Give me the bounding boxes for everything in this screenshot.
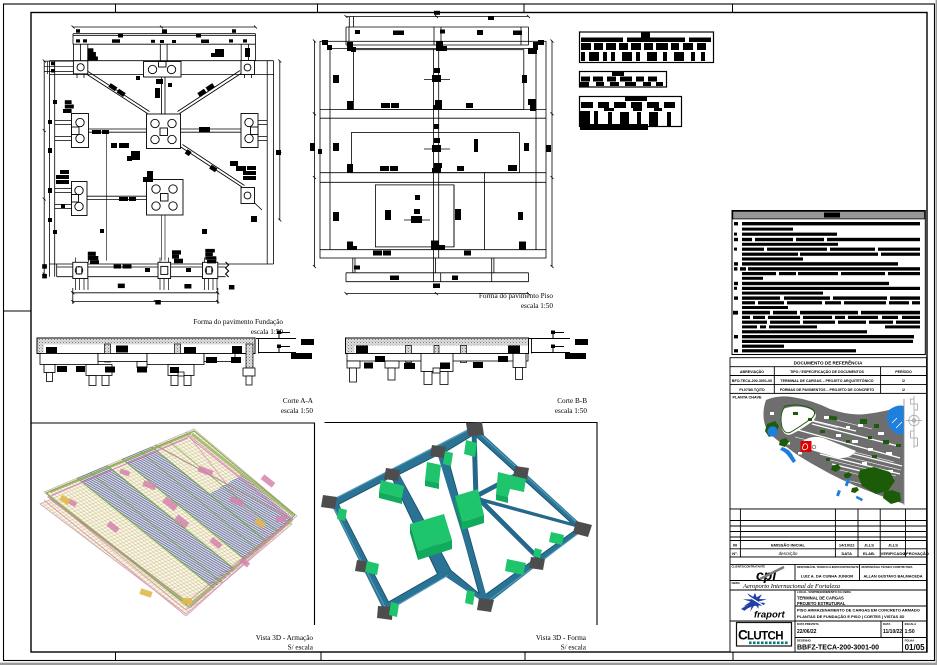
svg-text:PLANTA CHAVE: PLANTA CHAVE — [733, 396, 763, 400]
svg-text:PL07/80.TQ/TD: PL07/80.TQ/TD — [739, 388, 765, 392]
svg-text:DATA: DATA — [883, 622, 890, 626]
svg-text:descrição: descrição — [779, 551, 798, 556]
svg-text:VERIFICADO: VERIFICADO — [881, 551, 906, 556]
svg-text:TIPO / ESPECIFICAÇÃO DE DOCUME: TIPO / ESPECIFICAÇÃO DE DOCUMENTOS — [790, 369, 864, 374]
svg-text:RESPONSÁVEL TÉCNICO CLIENTE/CO: RESPONSÁVEL TÉCNICO CLIENTE/CONTRATANTE — [797, 566, 859, 569]
svg-text:TERMINAL DE CARGAS – PROJETO A: TERMINAL DE CARGAS – PROJETO ARQUITETÔNI… — [780, 378, 873, 383]
svg-text:escala 1:50: escala 1:50 — [521, 302, 554, 310]
svg-text:ABREVIAÇÃO: ABREVIAÇÃO — [740, 369, 764, 374]
svg-text:01/05: 01/05 — [905, 643, 926, 652]
svg-text:BBFZ-TECA-200-3001-00: BBFZ-TECA-200-3001-00 — [797, 645, 879, 652]
svg-text:JLLS: JLLS — [888, 543, 898, 548]
svg-text:DOCUMENTO DE REFERÊNCIA: DOCUMENTO DE REFERÊNCIA — [794, 359, 864, 366]
svg-text:JLLS: JLLS — [864, 543, 874, 548]
svg-text:/2: /2 — [902, 379, 905, 383]
svg-text:00: 00 — [733, 543, 738, 548]
svg-text:S/ escala: S/ escala — [561, 644, 587, 652]
svg-text:ALLAN GUSTAVO BALMACEDA: ALLAN GUSTAVO BALMACEDA — [863, 574, 922, 579]
svg-text:Corte A-A: Corte A-A — [283, 397, 314, 405]
svg-text:DATA: DATA — [841, 551, 852, 556]
svg-text:11/10/22: 11/10/22 — [883, 629, 902, 635]
svg-text:Vista 3D - Forma: Vista 3D - Forma — [536, 634, 587, 642]
svg-text:ELAB.: ELAB. — [863, 551, 875, 556]
svg-text:TERMINAL DE CARGAS: TERMINAL DE CARGAS — [797, 595, 844, 600]
svg-text:LOCAL / EMPREENDIMENTO DA OBRA: LOCAL / EMPREENDIMENTO DA OBRA — [797, 590, 852, 594]
svg-text:Forma do pavimento Fundação: Forma do pavimento Fundação — [193, 318, 283, 326]
svg-text:PROJETO ESTRUTURAL: PROJETO ESTRUTURAL — [797, 601, 846, 606]
svg-text:fraport: fraport — [754, 610, 785, 621]
svg-text:Forma do pavimento Piso: Forma do pavimento Piso — [479, 292, 553, 300]
svg-text:LUTCH: LUTCH — [747, 631, 783, 643]
svg-text:PLANTAS DE FUNDAÇÃO E PISO | C: PLANTAS DE FUNDAÇÃO E PISO | CORTES | VI… — [797, 614, 905, 619]
svg-text:N°.: N°. — [732, 551, 738, 556]
svg-text:Vista 3D - Armação: Vista 3D - Armação — [256, 634, 314, 642]
svg-text:PISO ARMAZENAMENTO DE CARGAS E: PISO ARMAZENAMENTO DE CARGAS EM CONCRETO… — [797, 608, 920, 613]
svg-text:14/10/22: 14/10/22 — [839, 543, 855, 548]
svg-text:FORMAS DE PAVIMENTOS – PROJETO: FORMAS DE PAVIMENTOS – PROJETO DE CONCRE… — [780, 388, 875, 392]
svg-text:ESCALA: ESCALA — [905, 622, 917, 626]
svg-text:escala 1:50: escala 1:50 — [555, 407, 588, 415]
svg-text:S/ escala: S/ escala — [288, 644, 314, 652]
svg-text:DESENHO: DESENHO — [797, 639, 812, 643]
svg-text:1:50: 1:50 — [905, 629, 915, 635]
svg-text:escala 1:50: escala 1:50 — [281, 407, 314, 415]
svg-text:LUIZ A. DA CUNHA JUNIOR: LUIZ A. DA CUNHA JUNIOR — [801, 574, 853, 579]
svg-text:RESPONSÁVEL TÉCNICO CONSTRUTOR: RESPONSÁVEL TÉCNICO CONSTRUTORA — [862, 566, 913, 569]
svg-text:BFO-TECA-200-3001-00: BFO-TECA-200-3001-00 — [732, 379, 772, 383]
svg-text:EMISSÃO INICIAL: EMISSÃO INICIAL — [771, 543, 806, 548]
svg-text:22/06/22: 22/06/22 — [797, 629, 817, 635]
svg-text:OBRA: OBRA — [732, 581, 740, 585]
svg-text:PERÍODO: PERÍODO — [895, 369, 912, 374]
svg-text:/2: /2 — [902, 388, 905, 392]
svg-text:Corte B-B: Corte B-B — [557, 397, 587, 405]
svg-text:APROVAÇÃO: APROVAÇÃO — [903, 551, 929, 556]
svg-text:FOLHA: FOLHA — [905, 639, 915, 643]
svg-text:DATA PREVISTA: DATA PREVISTA — [797, 622, 819, 626]
